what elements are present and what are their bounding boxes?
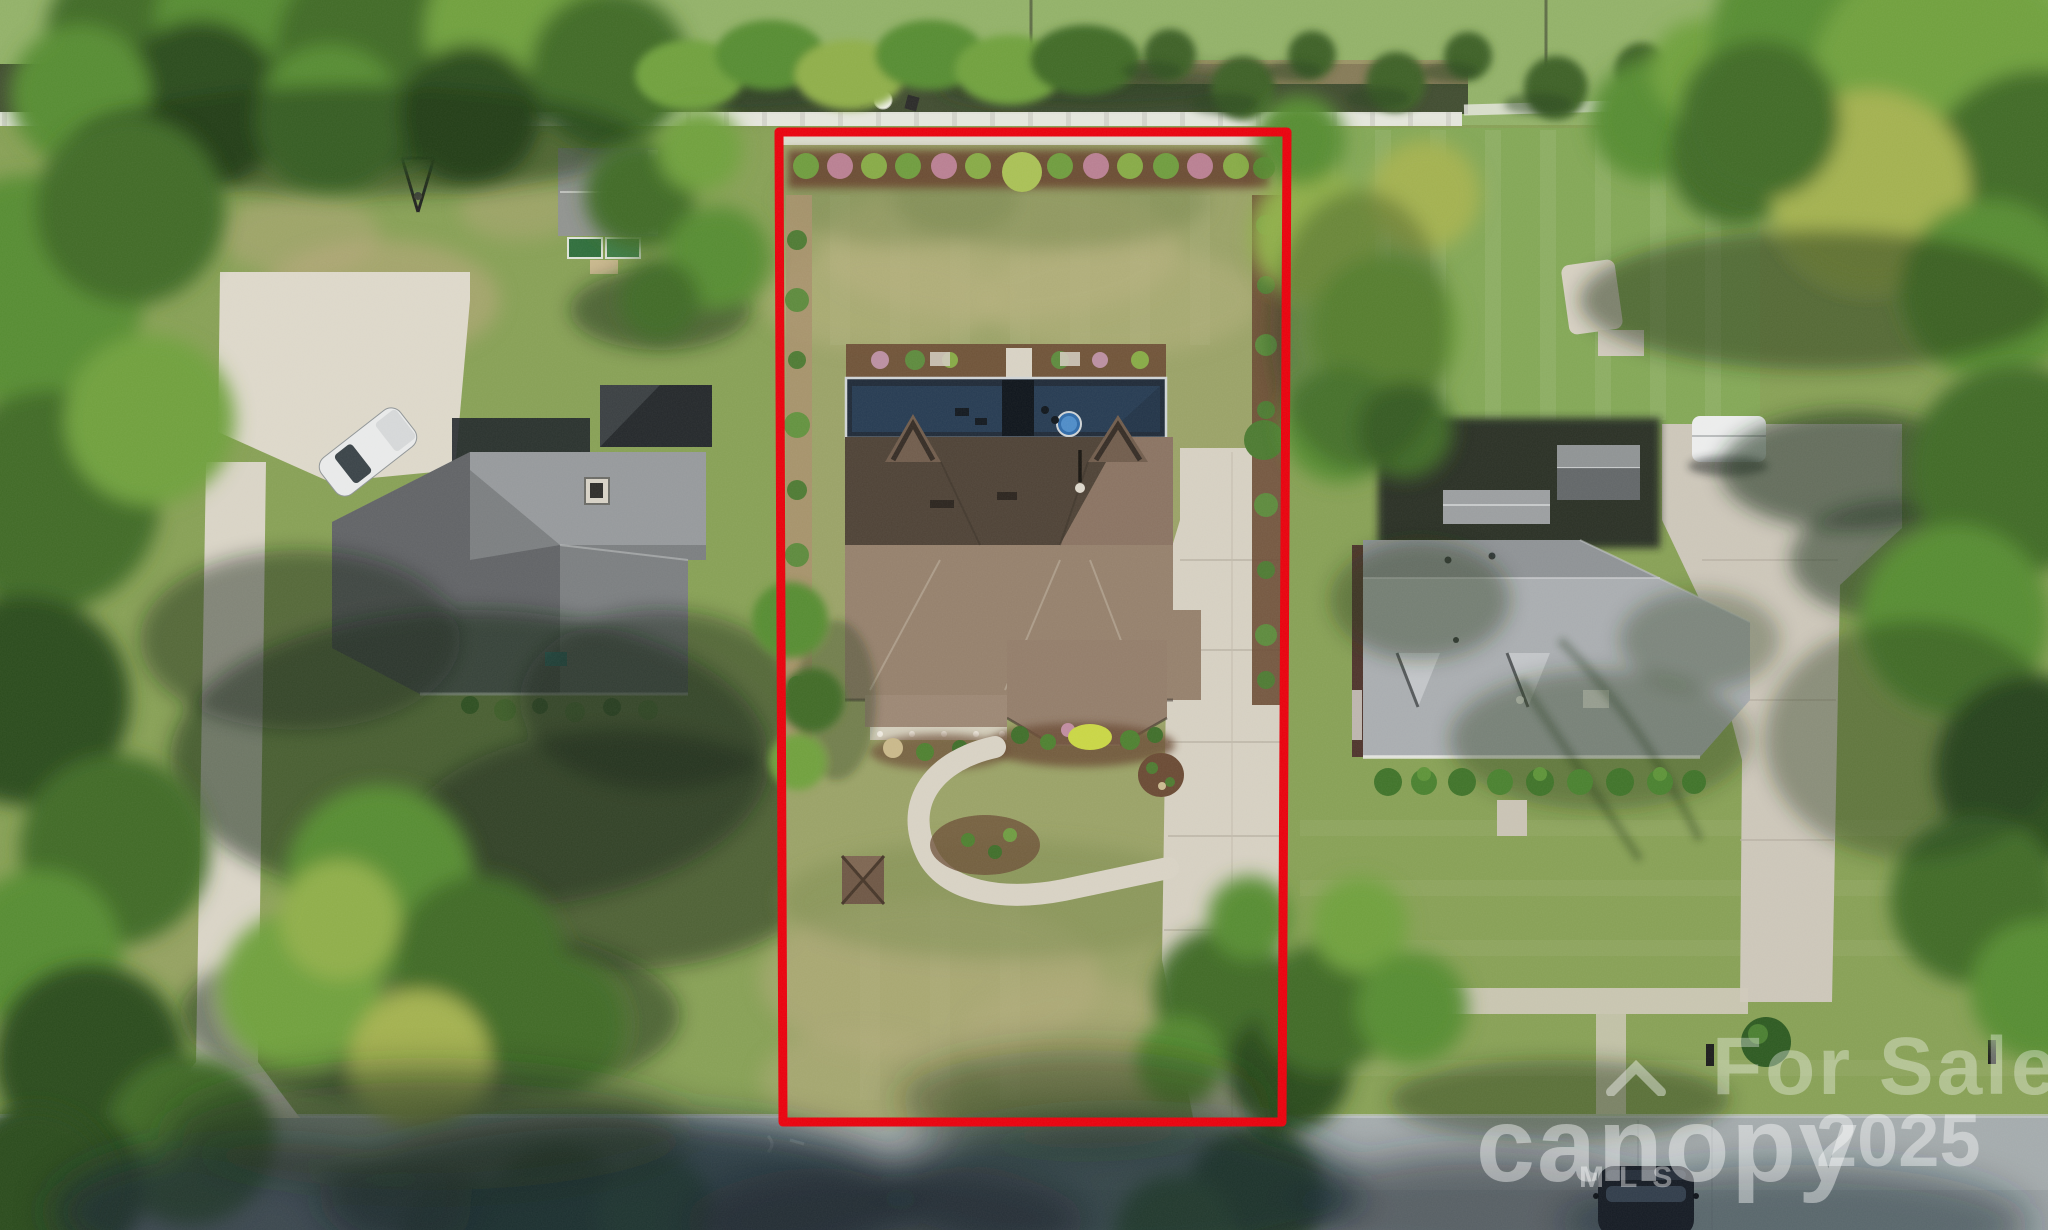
canopy-leaf-icon	[1604, 1060, 1668, 1096]
aerial-photo-stage: For Sale canopy MLS 2025	[0, 0, 2048, 1230]
year-watermark: 2025	[1816, 1104, 1981, 1178]
mls-watermark: MLS	[1579, 1163, 1687, 1193]
